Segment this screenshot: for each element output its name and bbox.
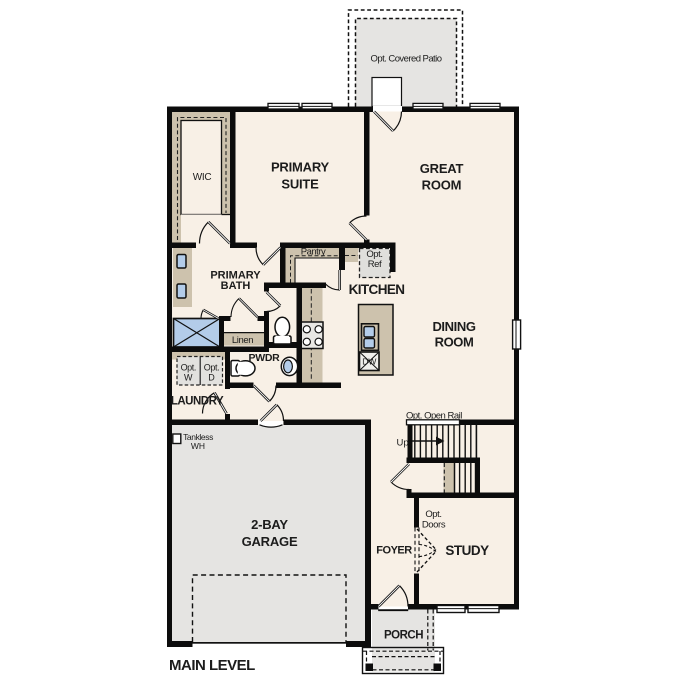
svg-text:W: W [184, 373, 193, 383]
svg-text:SUITE: SUITE [281, 177, 319, 192]
svg-text:WH: WH [191, 441, 205, 451]
svg-text:Opt.: Opt. [181, 363, 196, 373]
svg-text:ROOM: ROOM [422, 178, 462, 193]
svg-text:Opt.: Opt. [425, 509, 441, 520]
svg-text:Opt. Open Rail: Opt. Open Rail [406, 410, 462, 421]
svg-text:Opt. Covered Patio: Opt. Covered Patio [371, 54, 442, 65]
svg-text:Linen: Linen [232, 335, 253, 346]
svg-text:MAIN LEVEL: MAIN LEVEL [169, 657, 255, 674]
svg-text:LAUNDRY: LAUNDRY [171, 396, 224, 408]
svg-text:Pantry: Pantry [301, 246, 326, 257]
svg-text:D: D [208, 373, 215, 383]
svg-text:2-BAY: 2-BAY [251, 517, 288, 532]
svg-text:Up: Up [397, 438, 409, 449]
svg-text:GARAGE: GARAGE [242, 534, 298, 549]
svg-text:FOYER: FOYER [376, 545, 412, 557]
svg-text:PRIMARY: PRIMARY [271, 160, 330, 175]
svg-text:DINING: DINING [432, 319, 475, 334]
svg-text:BATH: BATH [221, 280, 251, 292]
svg-text:Doors: Doors [422, 520, 446, 531]
svg-text:KITCHEN: KITCHEN [349, 282, 405, 297]
svg-text:Opt.: Opt. [204, 363, 219, 373]
svg-text:DW: DW [362, 357, 376, 367]
svg-text:ROOM: ROOM [435, 335, 474, 350]
svg-text:PORCH: PORCH [384, 630, 423, 642]
svg-text:PWDR: PWDR [249, 352, 281, 364]
svg-text:Ref: Ref [368, 259, 382, 270]
svg-text:STUDY: STUDY [445, 543, 489, 558]
svg-text:WIC: WIC [193, 172, 212, 183]
svg-text:GREAT: GREAT [420, 161, 464, 176]
